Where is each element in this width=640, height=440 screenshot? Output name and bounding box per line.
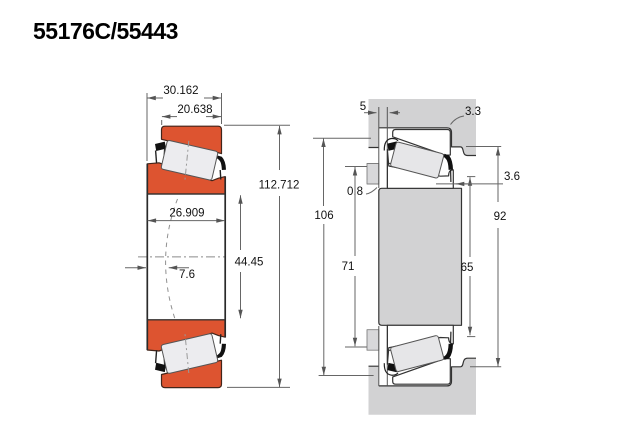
svg-text:3.6: 3.6	[504, 171, 520, 183]
svg-text:7.6: 7.6	[179, 269, 195, 281]
svg-text:44.45: 44.45	[235, 257, 264, 269]
svg-text:106: 106	[314, 210, 333, 222]
svg-text:92: 92	[494, 211, 507, 223]
svg-text:65: 65	[461, 262, 474, 274]
svg-text:112.712: 112.712	[259, 180, 300, 192]
svg-text:26.909: 26.909	[169, 208, 204, 220]
svg-text:30.162: 30.162	[163, 85, 198, 97]
svg-text:20.638: 20.638	[177, 104, 212, 116]
svg-text:5: 5	[360, 101, 366, 113]
svg-text:71: 71	[342, 261, 355, 273]
svg-text:3.3: 3.3	[465, 106, 481, 118]
